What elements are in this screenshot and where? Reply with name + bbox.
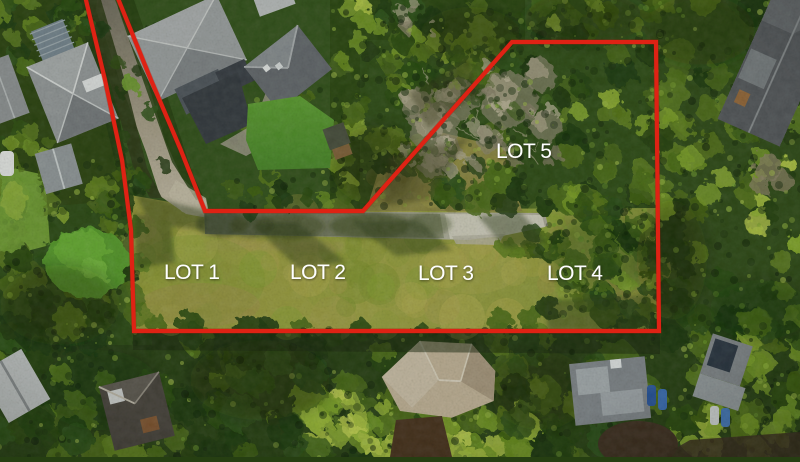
svg-text:LOT 5: LOT 5 [496,140,551,163]
svg-text:LOT 4: LOT 4 [547,262,603,285]
svg-text:LOT 1: LOT 1 [164,261,219,284]
svg-text:LOT 3: LOT 3 [418,262,473,285]
svg-text:LOT 2: LOT 2 [290,261,345,284]
